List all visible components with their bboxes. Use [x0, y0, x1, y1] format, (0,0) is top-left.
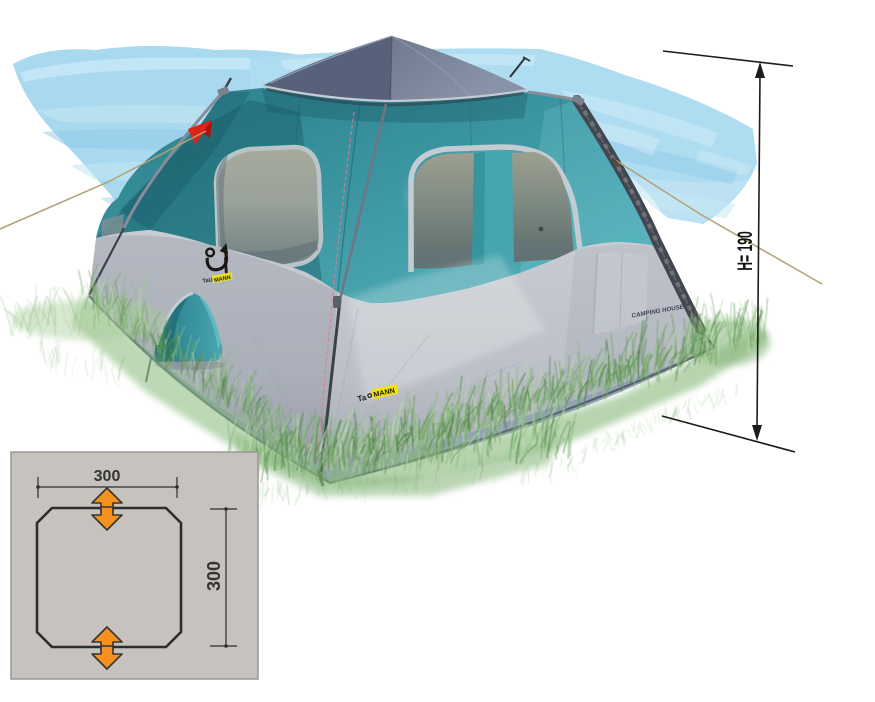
svg-text:H= 190: H= 190 [732, 231, 756, 271]
svg-text:300: 300 [94, 468, 121, 485]
svg-text:300: 300 [204, 561, 224, 591]
